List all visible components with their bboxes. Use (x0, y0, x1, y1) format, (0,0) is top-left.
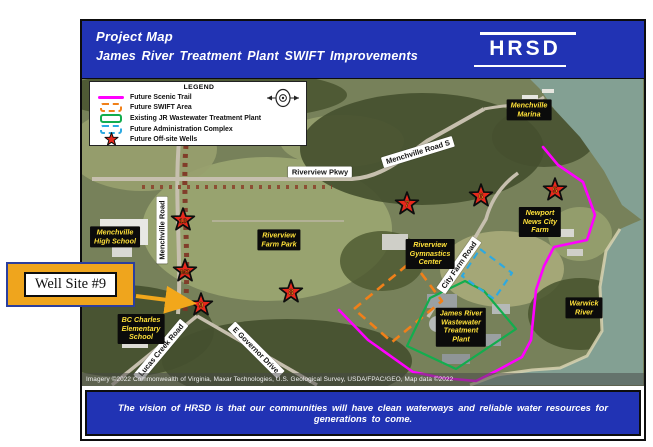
map-attribution: Imagery ©2022 Commonwealth of Virginia, … (82, 373, 644, 386)
legend-item-label: Future SWIFT Area (130, 104, 192, 111)
legend-item-label: Existing JR Wastewater Treatment Plant (130, 115, 261, 122)
header-titles: Project Map James River Treatment Plant … (96, 29, 418, 63)
legend-item-label: Future Off-site Wells (130, 136, 197, 143)
road-label: Menchville Road (157, 196, 168, 263)
place-label: Menchville Marina (507, 99, 552, 120)
well-site-star-icon: M2 (172, 258, 198, 284)
legend-swatch-star-icon (96, 132, 126, 147)
compass-icon (265, 87, 301, 109)
svg-text:8: 8 (289, 287, 294, 297)
legend-swatch-solid-icon (96, 114, 126, 123)
footer-banner: The vision of HRSD is that our communiti… (85, 390, 641, 436)
legend-item: Future Administration Complex (96, 124, 302, 135)
logo-wordmark: HRSD (474, 37, 576, 61)
well-site-star-icon: 5 (542, 177, 568, 203)
legend-item: Existing JR Wastewater Treatment Plant (96, 113, 302, 124)
page-title: Project Map (96, 29, 418, 44)
page-subtitle: James River Treatment Plant SWIFT Improv… (96, 49, 418, 63)
svg-text:6: 6 (479, 191, 484, 201)
place-label: Riverview Gymnastics Center (406, 239, 455, 269)
place-label: Riverview Farm Park (257, 229, 300, 250)
place-label: BC Charles Elementary School (118, 314, 165, 344)
well-site-star-icon: 10 (170, 207, 196, 233)
hrsd-logo: HRSD (474, 30, 576, 70)
svg-text:5: 5 (553, 185, 558, 195)
place-label: Newport News City Farm (519, 207, 561, 237)
logo-bottom-rule (474, 65, 566, 68)
well-site-star-icon: 7 (394, 191, 420, 217)
project-map-page: Project Map James River Treatment Plant … (0, 0, 653, 447)
vision-statement: The vision of HRSD is that our communiti… (87, 402, 639, 424)
legend-swatch-dashed-icon (96, 103, 126, 112)
legend-item: Future Off-site Wells (96, 134, 302, 145)
place-label: Warwick River (565, 297, 602, 318)
legend-swatch-line-icon (96, 96, 126, 100)
place-label: Menchville High School (90, 226, 140, 247)
legend: LEGEND Future Scenic TrailFuture SWIFT A… (89, 81, 307, 146)
header-bar: Project Map James River Treatment Plant … (82, 21, 644, 79)
svg-text:9: 9 (199, 300, 204, 310)
well-site-star-icon: 9 (188, 292, 214, 318)
legend-item-label: Future Scenic Trail (130, 94, 192, 101)
well-site-star-icon: 8 (278, 279, 304, 305)
svg-text:M2: M2 (180, 269, 190, 276)
legend-item-label: Future Administration Complex (130, 126, 233, 133)
satellite-map: LEGEND Future Scenic TrailFuture SWIFT A… (82, 79, 644, 386)
well-site-callout: Well Site #9 (6, 262, 135, 307)
well-site-star-icon: 6 (468, 183, 494, 209)
place-label: James River Wastewater Treatment Plant (436, 308, 486, 347)
well-site-callout-label: Well Site #9 (24, 272, 117, 297)
svg-text:10: 10 (179, 218, 187, 225)
svg-text:7: 7 (405, 199, 410, 209)
road-label: Riverview Pkwy (288, 167, 352, 178)
logo-top-rule (480, 32, 576, 35)
